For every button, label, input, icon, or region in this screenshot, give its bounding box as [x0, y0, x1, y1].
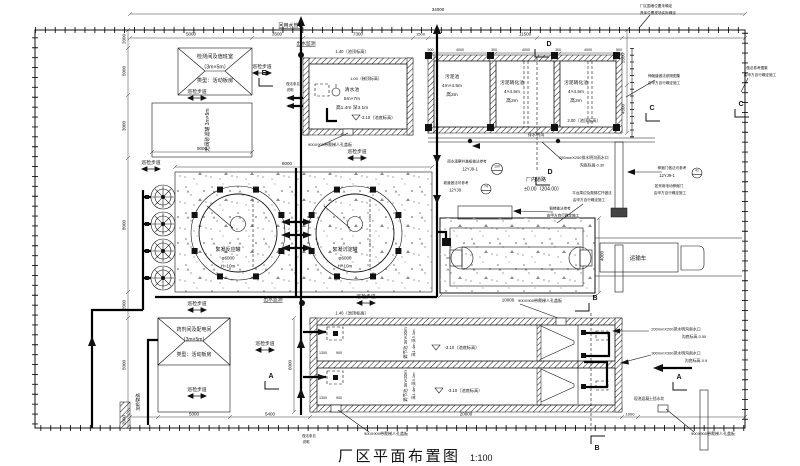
label-sludge-pool-1: 污泥池 — [445, 73, 460, 80]
code-rain-well: 12YJ9-1 — [462, 167, 478, 172]
dim-900-p1: 900 — [336, 351, 342, 355]
gate — [611, 142, 708, 450]
label-tank2-1: 絮凝沉淀罐 — [332, 246, 357, 253]
drawing-title: 厂区平面布置图 — [338, 448, 461, 465]
label-digestion1-1: 污泥硝化池 — [500, 79, 524, 86]
label-gutter-300: 300mmX300排水明沟雨水口 — [651, 351, 700, 356]
label-road-elev: ±0.00（204.00） — [524, 187, 562, 193]
marker-section-b-top: B — [592, 295, 597, 302]
drawing-scale: 1:100 — [470, 453, 493, 463]
label-road: 厂内道路 — [526, 176, 546, 183]
walkway-arrow-icon — [348, 156, 366, 160]
label-elev-310-p2: -3.10（池底标高） — [448, 387, 483, 394]
label-tank2-2: φ6000 — [339, 256, 352, 261]
dim-11500-top: 11500 — [519, 32, 532, 37]
label-elev-310-cwt: -3.10（池底标高） — [361, 114, 396, 121]
dosing-mixers — [151, 185, 175, 290]
truck — [600, 243, 704, 272]
label-inspection-room-2: （3m×5m） — [201, 64, 229, 71]
note-gate-1: 伸缩门做法可参考 — [658, 165, 687, 170]
note-stair-1: 钢梯做法参考 — [549, 206, 571, 211]
note-bl-1: 做法参见 — [302, 433, 316, 438]
label-outlet-monitor-mid: 出水监测 — [263, 296, 282, 303]
marker-section-d-mid: D — [547, 169, 552, 176]
dim-5000-bottom: 5000 — [189, 412, 200, 417]
elevation-triangle-p2 — [435, 388, 443, 393]
walkway-arrow-icon — [357, 301, 375, 305]
label-outlet-monitor-top: 出水监测 — [296, 40, 315, 47]
monitor-point-top — [298, 52, 304, 58]
note-right-1: 做法参考图集 — [746, 65, 768, 70]
label-reg-pool-1a: 调节池 3m×20m — [402, 327, 409, 359]
note-joint-2: 由甲方自行确定施工 — [648, 80, 681, 85]
dim-cell-500a: 500 — [428, 48, 434, 52]
monitor-point-mid — [299, 300, 305, 306]
dim-1300-p1: 1300 — [319, 351, 327, 355]
marker-section-c-2: C — [738, 101, 743, 108]
marker-section-a-left: A — [268, 373, 273, 380]
label-gutter-200-elev: 沟底标高-0.50 — [682, 334, 707, 339]
dim-5000-left-b: 5000 — [122, 359, 127, 370]
label-elev-310-p1: -3.10（池底标高） — [445, 344, 480, 351]
note-e-2: 说明 — [287, 87, 294, 92]
manhole-hatch-2 — [556, 318, 566, 325]
dim-cell-4000c: 4000 — [584, 48, 592, 52]
label-manhole-1: 900X900带爬梯人孔盖板 — [308, 141, 352, 147]
marker-section-d-top: D — [546, 41, 551, 48]
elevation-triangle-cwt — [352, 115, 360, 120]
label-walkway-7: 巡检步道 — [187, 386, 206, 393]
dim-1000-bottom: 1000 — [626, 412, 636, 417]
note-platform-1: 平台周边及爬梯栏杆做法 — [572, 190, 612, 195]
label-clearwater-3: 高1.4m 深3.1m — [336, 104, 368, 111]
sym-100: 100 — [494, 165, 500, 169]
pump-block — [442, 238, 451, 246]
label-walkway-5: 巡检步道 — [356, 293, 375, 300]
south-gate — [700, 390, 708, 450]
label-digestion1-3: 高2m — [506, 97, 517, 104]
label-tank1-2: φ6000 — [222, 256, 235, 261]
note-bl-2: 说明 — [303, 439, 310, 444]
marker-section-b-bottom: B — [594, 445, 599, 452]
walkway-arrow-icon — [256, 348, 274, 352]
label-tank2-3: H=10m — [338, 264, 353, 269]
label-gutter-250-elev: 沟底标高-0.30 — [580, 163, 605, 168]
dim-8000-pad: 8000 — [282, 161, 293, 166]
code-ramp: 12YJ8 — [449, 188, 462, 193]
marker-section-a-right: A — [676, 374, 681, 381]
label-sand-filter: 无阀砂滤罐 3m×9m — [204, 108, 211, 151]
label-manhole-4: 900X900带爬梯人孔盖板 — [691, 430, 735, 436]
label-walkway-2: 巡检步道 — [187, 88, 206, 95]
sym-74: 74 — [484, 185, 488, 189]
label-reg-pool-1b: 高1.4m 深3.1m — [410, 329, 416, 357]
note-joint-1: 伸缩缝做法参照图集 — [648, 73, 681, 78]
dim-20000-bottom: 20000 — [460, 412, 473, 417]
note-rain-well: 雨水观察井盖板做法参考 — [447, 159, 487, 164]
label-tank1-3: H=10m — [221, 264, 236, 269]
note-egate-2: 由甲方自行确定施工 — [654, 190, 687, 195]
label-manhole-2: 900X900带爬梯人孔盖板 — [518, 297, 562, 303]
note-stair-2: 由甲方自行确定施工 — [547, 213, 580, 218]
dim-10000-dewater: 10000 — [502, 298, 515, 303]
label-walkway-1: 巡检步道 — [141, 159, 160, 166]
title-block: 厂区平面布置图 1:100 — [338, 448, 493, 465]
label-chemical-room-3: 类型：活动板房 — [176, 351, 211, 358]
marker-section-c-1: C — [649, 105, 654, 112]
note-ramp: 坡道做法可参考 — [443, 180, 469, 185]
label-walkway-6: 巡检步道 — [255, 340, 274, 347]
truck-cab — [681, 246, 704, 270]
note-egate-1: 如采用电动伸缩门 — [655, 183, 684, 188]
dim-1500-top: 1500 — [416, 32, 426, 37]
label-chemical-room-1: 药剂间及配电间 — [176, 326, 211, 333]
label-sludge-pool-2: 4m×4.5m — [442, 83, 462, 89]
site-plan-svg: 3400050003500730015001150050040003004000… — [0, 0, 800, 466]
dim-5400-bottom: 5400 — [265, 412, 276, 417]
label-gutter-300-elev: 沟底标高-0.9 — [685, 358, 707, 363]
label-walkway-4: 巡检步道 — [187, 300, 206, 307]
manhole-hatch-4 — [658, 405, 668, 412]
dim-cell-300a: 300 — [491, 48, 497, 52]
label-gutter-200: 200mmX200排水明沟雨水口 — [651, 327, 700, 332]
dim-cell-4000b: 4000 — [522, 48, 530, 52]
label-gutter-250: 250mmX250排水明沟雨水口 — [559, 155, 608, 160]
ramp — [458, 206, 512, 219]
label-drain-channel: 排水明沟 — [528, 131, 545, 138]
label-manhole-3: 900X900带爬梯人孔盖板 — [364, 430, 408, 436]
label-tank1-1: 絮凝反应罐 — [215, 246, 240, 253]
label-clearwater-1: 清水池 — [345, 86, 360, 93]
drain-channel-lines — [428, 138, 655, 142]
label-elev-140-pools: 1.40（池顶标高） — [335, 310, 368, 317]
walkway-arrow-icon — [188, 96, 206, 100]
walkway-arrow-icon — [188, 308, 206, 312]
label-reuse-water-pipe: 回用水管路 — [278, 22, 303, 29]
label-inspection-room-1: 检测间及值班室 — [197, 52, 233, 60]
label-reg-pool-2b: 高1.4m 深3.1m — [410, 372, 416, 400]
label-digestion2-2: 4×4.5m — [568, 89, 584, 95]
code-gate: 12YJ9-1 — [659, 173, 675, 178]
pump-symbol — [332, 88, 340, 96]
regulating-pools — [310, 318, 668, 412]
label-digestion1-2: 4×4.5m — [504, 89, 520, 95]
dim-3500-top: 3500 — [272, 32, 283, 37]
note-right-2: 由甲方自行确定施工 — [744, 72, 777, 77]
elevation-triangle-p1 — [432, 345, 440, 350]
dim-cell-500b: 500 — [616, 48, 622, 52]
label-walkway-8: 巡检步道 — [347, 148, 366, 155]
label-reg-pool-2a: 调节池 3m×20m — [402, 370, 409, 402]
dim-3000-left: 3000 — [122, 120, 127, 131]
dim-2000-left-a: 2000 — [122, 33, 127, 44]
label-clearwater-2: 5m×7m — [344, 96, 360, 102]
dewatering-area — [440, 218, 595, 293]
dim-7300-top: 7300 — [353, 32, 364, 37]
note-platform-2: 由甲方自行确定施工 — [573, 197, 606, 202]
sym-41: 41 — [695, 169, 699, 173]
label-dosing-pipe: 加药管路 — [135, 393, 142, 411]
manhole-hatch-1 — [343, 129, 353, 135]
label-elev-140-top: 1.40（池顶标高） — [335, 48, 368, 55]
dim-5000-left: 5000 — [122, 65, 127, 76]
label-truck: 运输车 — [630, 254, 647, 262]
dim-5500-right: 5500 — [621, 52, 626, 63]
dim-5000-top: 5000 — [186, 32, 197, 37]
label-inspection-room-3: 类型：活动板房 — [197, 76, 233, 84]
note-water-stop: 现浇混凝土挡水坎 — [634, 396, 665, 401]
label-chemical-room-2: （3m×5m） — [181, 337, 208, 343]
dim-2000-left-c: 2000 — [122, 414, 127, 425]
dim-6000-pools: 6000 — [288, 359, 293, 370]
dim-cell-4000a: 4000 — [456, 48, 464, 52]
label-sludge-pool-3: 高2m — [446, 91, 457, 98]
drawing-canvas: 3400050003500730015001150050040003004000… — [0, 0, 800, 466]
dim-cell-300b: 300 — [555, 48, 561, 52]
label-walkway-3: 巡检步道 — [252, 63, 271, 70]
dim-4000-dewater: 4000 — [600, 250, 605, 261]
dim-900-p2: 900 — [336, 396, 342, 400]
dim-8000-left: 8000 — [122, 219, 127, 230]
label-elev-100-ladder: 1.00（梯顶标高） — [350, 75, 382, 81]
dim-total-width: 34000 — [432, 7, 445, 12]
label-digestion2-3: 高2m — [570, 97, 581, 104]
dim-1300-p2: 1300 — [319, 396, 327, 400]
note-fence-2: 具体位置现场实际确定 — [640, 10, 676, 15]
note-fence-1: 厂区围墙位置未确定 — [640, 3, 673, 8]
dim-2000-left-b: 2000 — [122, 299, 127, 310]
label-digestion2-1: 污泥硝化池 — [564, 79, 588, 86]
label-elev-200: 2.00（池顶标高） — [567, 117, 600, 124]
dim-4500-right: 4500 — [621, 103, 626, 114]
tank-ladder — [315, 84, 329, 96]
note-e-1: 做法参见 — [286, 81, 300, 86]
walkway-arrow-icon — [188, 394, 206, 398]
walkway-arrow-icon — [142, 167, 160, 171]
